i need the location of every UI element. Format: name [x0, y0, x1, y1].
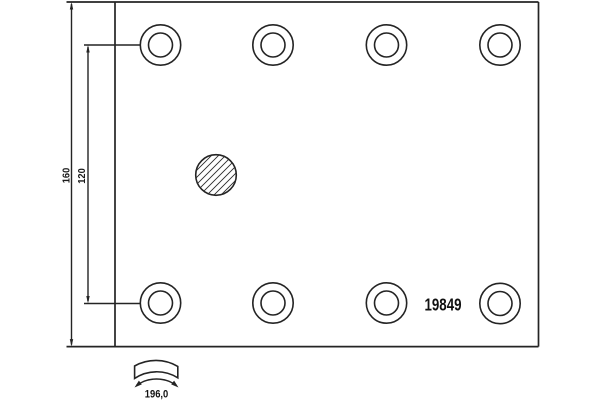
svg-text:160: 160 — [62, 167, 73, 183]
svg-text:19849: 19849 — [425, 295, 462, 315]
svg-text:196,0: 196,0 — [145, 389, 169, 400]
svg-text:120: 120 — [77, 168, 88, 184]
